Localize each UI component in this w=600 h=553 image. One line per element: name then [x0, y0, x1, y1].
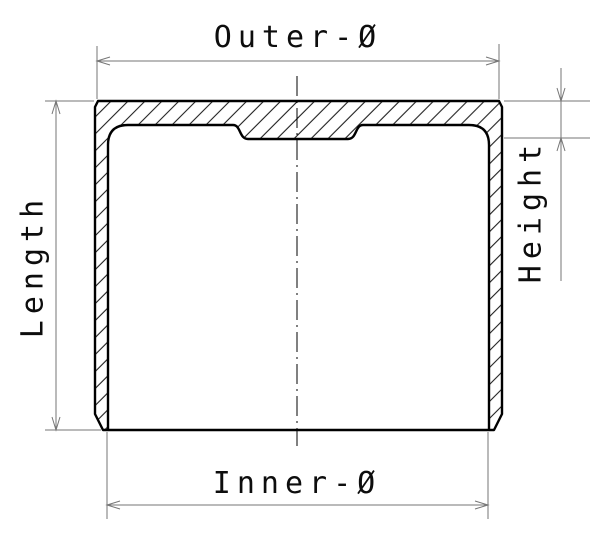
- inner-diameter-label: Inner-Ø: [213, 466, 381, 501]
- length-dimension: Length: [16, 101, 102, 430]
- technical-drawing-page: Outer-Ø Length Height: [0, 0, 600, 553]
- height-dimension: Height: [504, 68, 590, 283]
- outer-diameter-dimension: Outer-Ø: [97, 20, 499, 99]
- part-cross-section: [95, 76, 502, 446]
- height-label: Height: [514, 139, 549, 283]
- outer-diameter-label: Outer-Ø: [214, 20, 382, 55]
- tappet-cross-section-drawing: Outer-Ø Length Height: [0, 0, 600, 553]
- length-label: Length: [16, 194, 51, 338]
- part-outline: [95, 101, 502, 430]
